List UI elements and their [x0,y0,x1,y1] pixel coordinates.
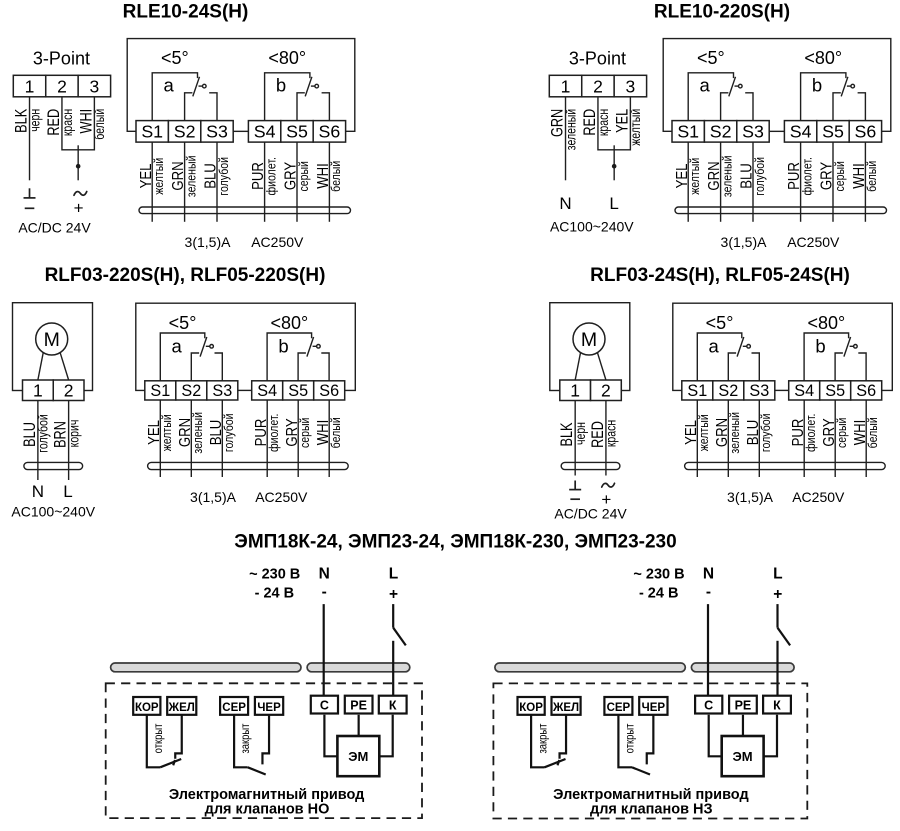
svg-text:закрыт: закрыт [536,723,549,753]
svg-text:желтый: желтый [687,158,702,195]
svg-text:1: 1 [570,380,580,400]
svg-text:ЭМ: ЭМ [348,749,368,764]
svg-text:AC100~240V: AC100~240V [11,503,95,519]
svg-text:AC250V: AC250V [251,234,304,250]
svg-text:<5°: <5° [161,48,189,68]
svg-text:S2: S2 [710,122,732,142]
svg-text:S2: S2 [174,122,196,142]
svg-text:M: M [44,329,60,351]
svg-text:фиолет.: фиолет. [803,414,818,452]
svg-text:ЖЕЛ: ЖЕЛ [552,702,579,714]
svg-text:С: С [704,699,713,713]
svg-text:3: 3 [90,76,100,96]
svg-text:- 24 В: - 24 В [255,586,295,602]
svg-text:зеленый: зеленый [190,412,205,454]
svg-text:b: b [278,336,288,357]
svg-text:~ 230 В: ~ 230 В [633,567,684,583]
svg-text:AC/DC 24V: AC/DC 24V [18,219,91,235]
svg-text:N: N [703,566,714,583]
svg-text:S4: S4 [790,122,812,142]
svg-text:3(1,5)A: 3(1,5)A [185,234,232,250]
svg-text:b: b [815,336,825,357]
svg-text:КОР: КОР [519,702,543,714]
svg-text:СЕР: СЕР [222,702,246,714]
svg-text:желтый: желтый [696,414,711,451]
svg-text:S1: S1 [141,122,163,142]
svg-text:S6: S6 [319,382,339,400]
svg-text:+: + [74,198,84,217]
svg-text:<80°: <80° [807,313,845,333]
svg-text:N: N [559,194,571,213]
svg-text:S3: S3 [749,382,769,400]
svg-text:К: К [389,699,397,713]
svg-text:S3: S3 [206,122,228,142]
svg-text:AC250V: AC250V [787,234,840,250]
svg-text:S2: S2 [181,382,201,400]
svg-text:S4: S4 [254,122,276,142]
svg-text:M: M [581,329,597,351]
svg-text:L: L [773,566,782,583]
svg-text:S1: S1 [687,382,707,400]
svg-text:ЭМ: ЭМ [733,749,753,764]
svg-text:белый: белый [864,161,879,192]
svg-text:RLE10-24S(H): RLE10-24S(H) [123,2,249,23]
svg-text:2: 2 [601,380,611,400]
svg-text:3-Point: 3-Point [569,49,626,69]
svg-text:RLE10-220S(H): RLE10-220S(H) [654,2,790,23]
svg-text:зеленый: зеленый [727,412,742,454]
svg-text:RLF03-24S(H), RLF05-24S(H): RLF03-24S(H), RLF05-24S(H) [590,265,850,286]
svg-text:- 24 В: - 24 В [639,586,679,602]
svg-text:белый: белый [328,161,343,192]
svg-text:S4: S4 [794,382,814,400]
svg-text:S6: S6 [855,122,877,142]
svg-text:2: 2 [57,76,67,96]
svg-text:3(1,5)A: 3(1,5)A [190,489,237,505]
svg-text:желтый: желтый [151,158,166,195]
svg-text:для клапанов НО: для клапанов НО [205,801,330,817]
svg-text:S5: S5 [286,122,308,142]
svg-text:S6: S6 [856,382,876,400]
svg-text:AC250V: AC250V [255,489,308,505]
svg-text:S1: S1 [150,382,170,400]
svg-text:закрыт: закрыт [239,723,252,753]
svg-text:b: b [276,75,286,96]
svg-text:<80°: <80° [804,48,842,68]
svg-text:<80°: <80° [270,313,308,333]
svg-text:S2: S2 [718,382,738,400]
svg-text:ЧЕР: ЧЕР [642,702,666,714]
svg-text:С: С [320,699,329,713]
svg-text:N: N [319,566,330,583]
svg-text:голубой: голубой [216,157,231,196]
svg-text:S6: S6 [319,122,341,142]
svg-text:открыт: открыт [624,723,637,753]
svg-text:серый: серый [834,418,849,448]
svg-text:серый: серый [832,161,847,191]
svg-text:серый: серый [297,418,312,448]
svg-text:голубой: голубой [752,157,767,196]
svg-text:L: L [609,194,618,213]
svg-text:AC/DC 24V: AC/DC 24V [554,505,627,521]
svg-text:серый: серый [296,161,311,191]
svg-text:<5°: <5° [706,313,734,333]
svg-text:3(1,5)A: 3(1,5)A [727,489,774,505]
svg-text:<5°: <5° [697,48,725,68]
svg-text:+: + [773,586,782,603]
svg-text:1: 1 [33,380,43,400]
svg-text:AC100~240V: AC100~240V [550,218,634,234]
svg-text:N: N [32,482,44,501]
svg-text:желтый: желтый [159,414,174,451]
svg-text:2: 2 [64,380,74,400]
svg-text:белый: белый [865,417,880,448]
svg-text:a: a [699,75,710,96]
svg-text:фиолет.: фиолет. [799,157,814,195]
svg-text:+: + [389,586,398,603]
svg-text:1: 1 [25,76,35,96]
svg-text:РЕ: РЕ [350,699,367,713]
svg-text:ЭМП18К-24, ЭМП23-24, ЭМП18К-23: ЭМП18К-24, ЭМП23-24, ЭМП18К-230, ЭМП23-2… [234,531,676,552]
svg-text:голубой: голубой [758,414,773,453]
svg-text:a: a [163,75,174,96]
svg-text:для клапанов НЗ: для клапанов НЗ [590,801,713,817]
svg-text:белый: белый [328,417,343,448]
svg-text:СЕР: СЕР [607,702,631,714]
svg-text:фиолет.: фиолет. [266,414,281,452]
svg-text:a: a [172,336,183,357]
svg-text:РЕ: РЕ [735,699,752,713]
svg-text:1: 1 [561,76,571,96]
svg-text:открыт: открыт [152,723,165,753]
svg-text:S3: S3 [212,382,232,400]
svg-text:S3: S3 [742,122,764,142]
svg-text:S5: S5 [822,122,844,142]
svg-text:3: 3 [626,76,636,96]
svg-text:a: a [709,336,720,357]
svg-text:S5: S5 [288,382,308,400]
svg-text:AC250V: AC250V [792,489,845,505]
svg-text:голубой: голубой [221,414,236,453]
svg-text:ЖЕЛ: ЖЕЛ [168,702,195,714]
svg-text:<80°: <80° [268,48,306,68]
svg-text:-: - [322,584,327,601]
svg-text:RLF03-220S(H), RLF05-220S(H): RLF03-220S(H), RLF05-220S(H) [45,265,326,286]
svg-text:КОР: КОР [135,702,159,714]
svg-text:2: 2 [593,76,603,96]
svg-text:3-Point: 3-Point [33,49,90,69]
svg-text:S5: S5 [825,382,845,400]
svg-text:L: L [389,566,398,583]
svg-text:зеленый: зеленый [719,156,734,198]
svg-text:S1: S1 [677,122,699,142]
svg-text:<5°: <5° [169,313,197,333]
svg-text:L: L [63,482,72,501]
svg-text:~ 230 В: ~ 230 В [249,567,300,583]
svg-text:зеленый: зеленый [183,156,198,198]
svg-text:фиолет.: фиолет. [263,157,278,195]
svg-text:-: - [706,584,711,601]
svg-text:3(1,5)A: 3(1,5)A [721,234,768,250]
svg-text:К: К [773,699,781,713]
svg-text:b: b [812,75,822,96]
svg-text:S4: S4 [257,382,277,400]
svg-text:ЧЕР: ЧЕР [257,702,281,714]
